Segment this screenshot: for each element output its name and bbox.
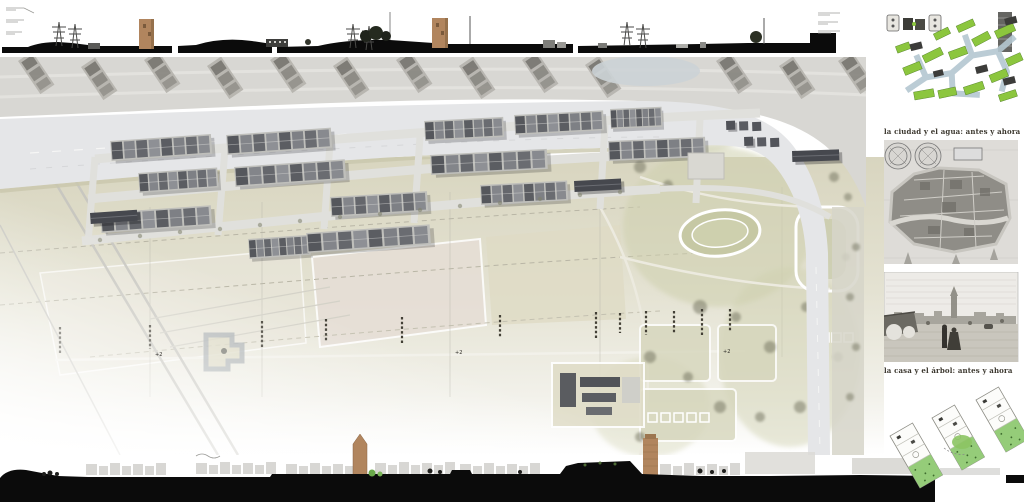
cow [984, 324, 993, 329]
top-elevation-section [0, 0, 1024, 57]
plot-evolution-diagrams [884, 378, 1024, 496]
caption-city-water: la ciudad y el agua: antes y ahora [884, 127, 1022, 136]
garden-blob [952, 435, 972, 449]
stamp-icons [887, 15, 941, 31]
caption-house-tree: la casa y el árbol: antes y ahora [884, 366, 1022, 375]
plan-fade-overlay [0, 57, 884, 455]
sidebar-reference-column: la ciudad y el agua: antes y ahora [884, 0, 1024, 502]
historic-landscape-engraving [884, 272, 1024, 362]
section-ground-line [2, 33, 836, 53]
bottom-elevation-section [0, 430, 1024, 502]
plot-stage-1 [890, 423, 943, 488]
presentation-board: +2 +2 +2 [0, 0, 1024, 502]
spot-elevation-label: +2 [723, 349, 730, 355]
historic-city-map-engraving [884, 140, 1024, 264]
plot-stage-3 [976, 387, 1024, 452]
annotation-marks [6, 8, 840, 34]
spot-elevation-label: +2 [155, 352, 162, 358]
masterplan-aerial [0, 57, 884, 455]
spot-elevation-label: +2 [455, 350, 462, 356]
background-buildings [86, 452, 1000, 475]
walled-city-mass [890, 168, 1010, 252]
city-water-axon-diagram [884, 8, 1024, 126]
stone-bridge [884, 312, 918, 340]
annotation-squiggle [196, 454, 220, 458]
